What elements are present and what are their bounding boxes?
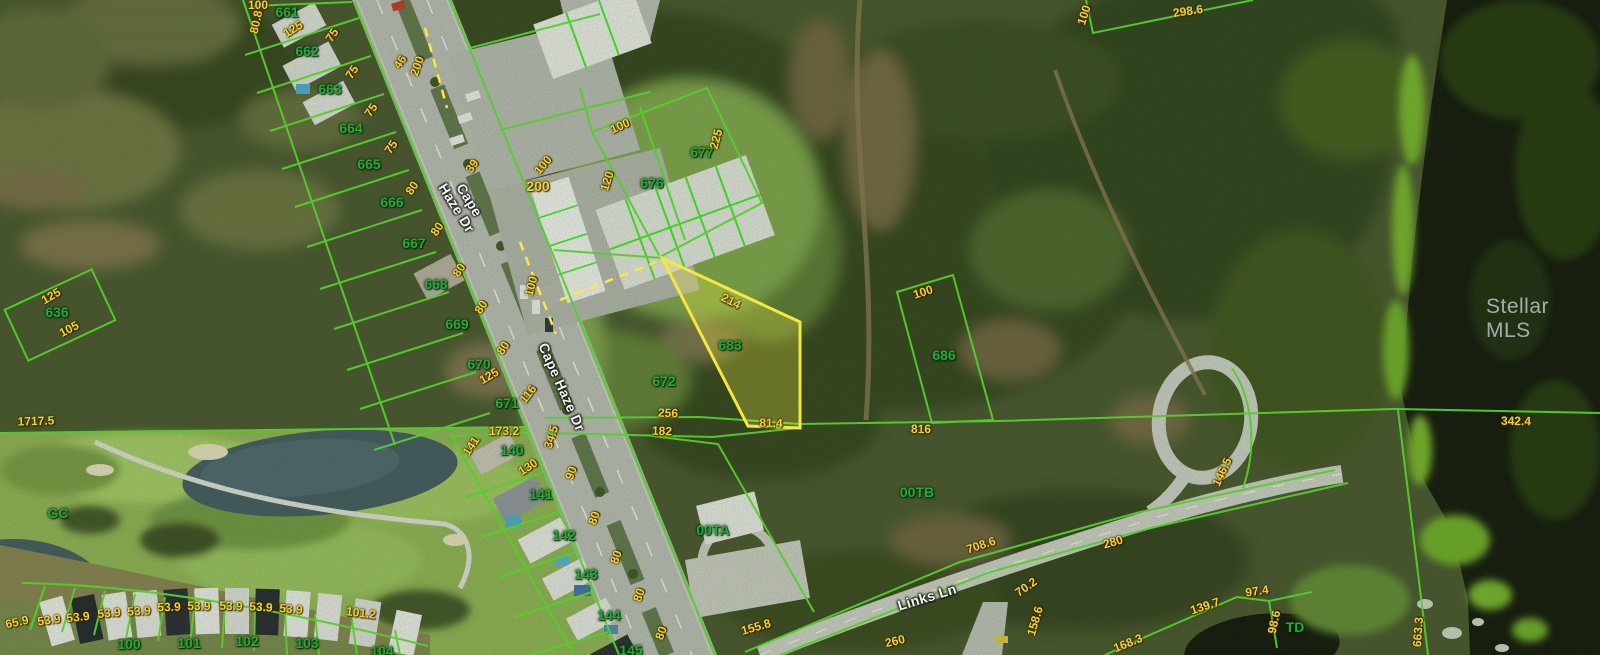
mls-watermark: Stellar MLS <box>1486 295 1562 343</box>
satellite-imagery <box>0 0 1600 655</box>
aerial-parcel-map: 6616626636646656666676686696706716726766… <box>0 0 1600 655</box>
